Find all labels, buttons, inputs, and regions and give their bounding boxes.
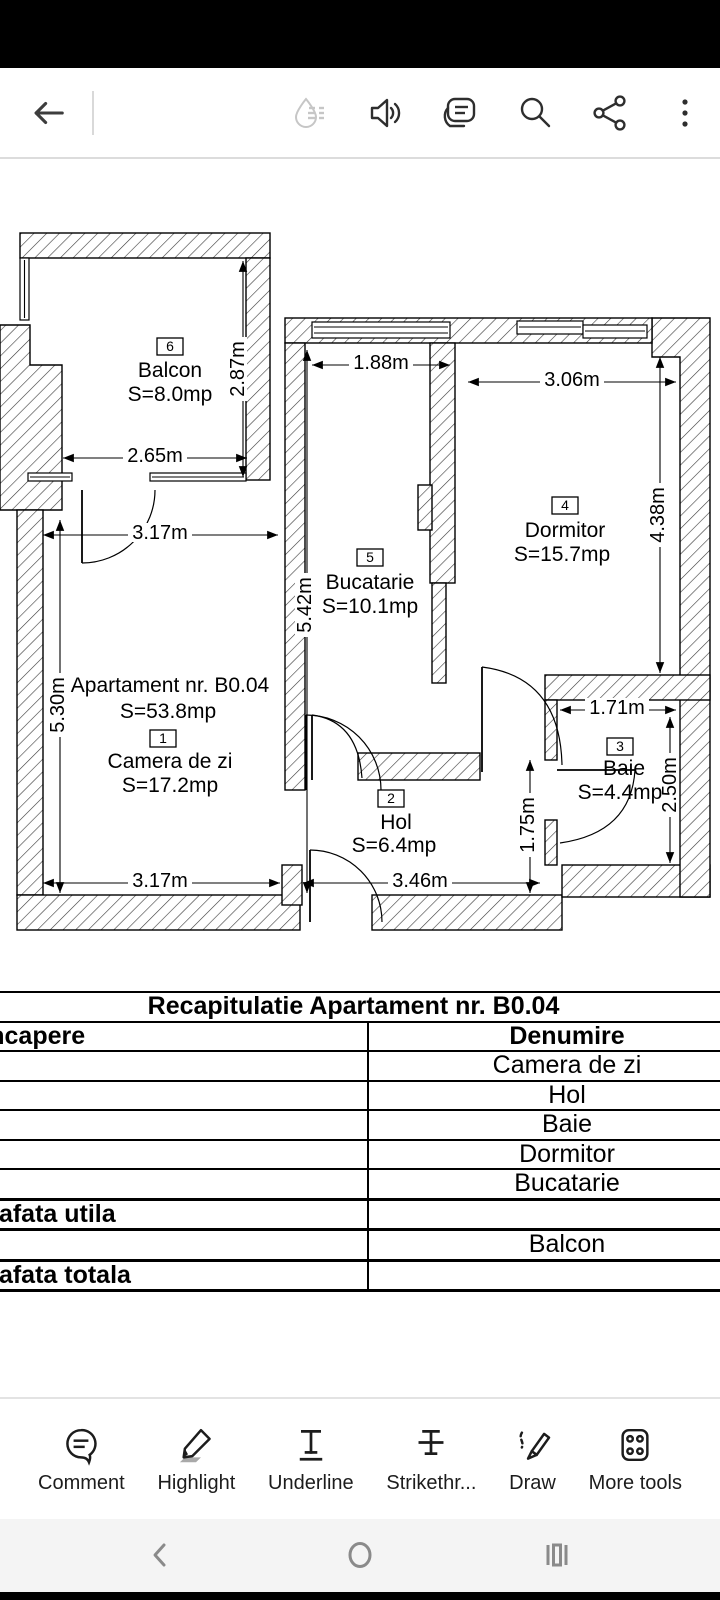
- room-3-area: S=4.4mp: [578, 781, 663, 804]
- recap-table: Recapitulatie Apartament nr. B0.04 Nr. I…: [0, 991, 720, 1292]
- table-row: 1 Camera de zi: [0, 1051, 720, 1081]
- row-4-number: 4: [0, 1140, 368, 1170]
- dim-lr-h: 5.30m: [47, 677, 69, 733]
- strikethrough-tool-button[interactable]: Strikethr...: [386, 1424, 476, 1495]
- dim-balcon-w: 2.65m: [127, 445, 183, 467]
- more-tools-icon: [614, 1424, 656, 1466]
- room-5-name: Bucatarie: [326, 571, 415, 594]
- search-button[interactable]: [512, 90, 558, 136]
- room-2-number: 2: [387, 790, 395, 806]
- dim-hol-w: 3.46m: [392, 870, 448, 892]
- col-header-denumire: Denumire: [368, 1022, 720, 1052]
- room-3-name: Baie: [603, 757, 645, 780]
- recap-table-wrap: Recapitulatie Apartament nr. B0.04 Nr. I…: [0, 991, 720, 1303]
- comment-button[interactable]: [437, 90, 483, 136]
- row-3-name: Baie: [368, 1110, 720, 1140]
- underline-tool-icon: [290, 1424, 332, 1466]
- dim-lr-top: 3.17m: [132, 522, 188, 544]
- room-2-name: Hol: [380, 811, 412, 834]
- room-1-area: S=17.2mp: [122, 774, 218, 797]
- status-bar: [0, 0, 720, 68]
- room-1-name: Camera de zi: [108, 750, 233, 773]
- android-nav-bar: [0, 1519, 720, 1592]
- comment-tool-icon: [60, 1424, 102, 1466]
- annotation-toolbar: Comment Highlight Underline: [0, 1397, 720, 1519]
- nav-recents-icon: [540, 1538, 574, 1572]
- dim-baie-w: 1.71m: [589, 697, 645, 719]
- draw-tool-button[interactable]: Draw: [509, 1424, 556, 1495]
- nav-home-icon: [343, 1538, 377, 1572]
- back-arrow-icon: [29, 94, 67, 132]
- room-4-name: Dormitor: [525, 519, 606, 542]
- draw-tool-label: Draw: [509, 1472, 556, 1495]
- underline-tool-button[interactable]: Underline: [268, 1424, 354, 1495]
- draw-tool-icon: [512, 1424, 554, 1466]
- row-6-number: 6: [0, 1230, 368, 1261]
- room-1-number: 1: [159, 730, 167, 746]
- row-2-name: Hol: [368, 1081, 720, 1111]
- row-6-name: Balcon: [368, 1230, 720, 1261]
- screen: 2.87m 2.65m 3.17m 1.88m 3.06m 5.42m: [0, 0, 720, 1600]
- comment-tool-button[interactable]: Comment: [38, 1424, 125, 1495]
- more-tools-label: More tools: [589, 1472, 682, 1495]
- row-1-name: Camera de zi: [368, 1051, 720, 1081]
- row-2-number: 2: [0, 1081, 368, 1111]
- table-row: 3 Baie: [0, 1110, 720, 1140]
- nav-back-icon: [143, 1538, 177, 1572]
- suprafata-totala-value: [368, 1260, 720, 1291]
- row-3-number: 3: [0, 1110, 368, 1140]
- back-button[interactable]: [26, 91, 70, 135]
- dim-kitchen-h: 5.42m: [294, 577, 316, 633]
- dim-hol-h: 1.75m: [517, 797, 539, 853]
- apartment-title: Apartament nr. B0.04: [71, 674, 270, 697]
- floor-plan: 2.87m 2.65m 3.17m 1.88m 3.06m 5.42m: [0, 165, 720, 945]
- apartment-area: S=53.8mp: [120, 700, 216, 723]
- col-header-incapere: Nr. Incapere: [0, 1022, 368, 1052]
- room-2-area: S=6.4mp: [352, 834, 437, 857]
- room-4-area: S=15.7mp: [514, 543, 610, 566]
- bottom-black-bar: [0, 1592, 720, 1600]
- dim-lr-bottom: 3.17m: [132, 870, 188, 892]
- share-icon: [588, 91, 632, 135]
- table-row-suprafata-totala: Suprafata totala: [0, 1260, 720, 1291]
- top-toolbar: [0, 68, 720, 159]
- comment-icon: [438, 91, 482, 135]
- liquid-mode-icon: [288, 91, 332, 135]
- table-row: 2 Hol: [0, 1081, 720, 1111]
- overflow-menu-button[interactable]: [662, 90, 708, 136]
- nav-recents-button[interactable]: [533, 1531, 581, 1579]
- speaker-icon: [363, 91, 407, 135]
- table-title: Recapitulatie Apartament nr. B0.04: [0, 992, 720, 1022]
- dim-kitchen-w: 1.88m: [353, 352, 409, 374]
- suprafata-totala-label: Suprafata totala: [0, 1260, 368, 1291]
- nav-back-button[interactable]: [136, 1531, 184, 1579]
- search-icon: [513, 91, 557, 135]
- row-5-name: Bucatarie: [368, 1169, 720, 1199]
- row-5-number: 5: [0, 1169, 368, 1199]
- table-row: 5 Bucatarie: [0, 1169, 720, 1199]
- room-6-name: Balcon: [138, 359, 202, 382]
- room-3-number: 3: [616, 738, 624, 754]
- pdf-page[interactable]: 2.87m 2.65m 3.17m 1.88m 3.06m 5.42m: [0, 161, 720, 1397]
- dim-dorm-w: 3.06m: [544, 369, 600, 391]
- room-6-area: S=8.0mp: [128, 383, 213, 406]
- read-aloud-button[interactable]: [362, 90, 408, 136]
- dim-dorm-h: 4.38m: [647, 487, 669, 543]
- highlight-tool-button[interactable]: Highlight: [157, 1424, 235, 1495]
- underline-tool-label: Underline: [268, 1472, 354, 1495]
- toolbar-divider: [92, 91, 94, 135]
- room-4-number: 4: [561, 497, 569, 513]
- highlight-tool-label: Highlight: [157, 1472, 235, 1495]
- room-5-number: 5: [366, 549, 374, 565]
- table-row: 6 Balcon: [0, 1230, 720, 1261]
- strikethrough-tool-icon: [410, 1424, 452, 1466]
- row-4-name: Dormitor: [368, 1140, 720, 1170]
- suprafata-utila-value: [368, 1199, 720, 1230]
- share-button[interactable]: [587, 90, 633, 136]
- table-row: 4 Dormitor: [0, 1140, 720, 1170]
- strikethrough-tool-label: Strikethr...: [386, 1472, 476, 1495]
- table-row-suprafata-utila: Suprafata utila: [0, 1199, 720, 1230]
- overflow-dots-icon: [663, 91, 707, 135]
- highlight-tool-icon: [175, 1424, 217, 1466]
- more-tools-button[interactable]: More tools: [589, 1424, 682, 1495]
- dim-balcon-h: 2.87m: [227, 341, 249, 397]
- comment-tool-label: Comment: [38, 1472, 125, 1495]
- room-6-number: 6: [166, 338, 174, 354]
- suprafata-utila-label: Suprafata utila: [0, 1199, 368, 1230]
- nav-home-button[interactable]: [336, 1531, 384, 1579]
- row-1-number: 1: [0, 1051, 368, 1081]
- room-5-area: S=10.1mp: [322, 595, 418, 618]
- liquid-mode-button[interactable]: [287, 90, 333, 136]
